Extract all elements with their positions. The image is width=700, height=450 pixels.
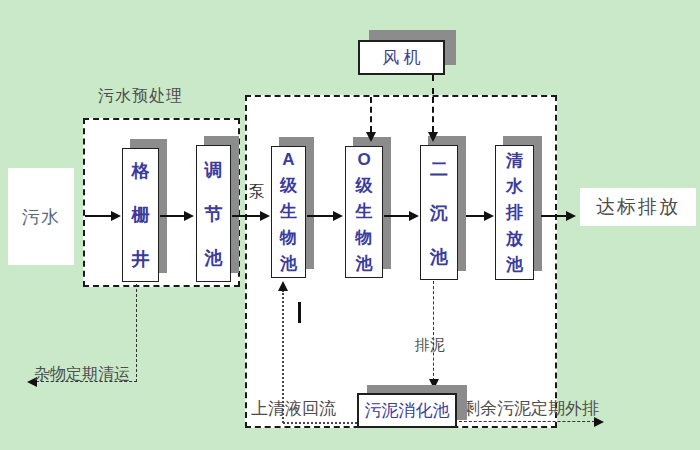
flow-arrowhead-o-to-sec (409, 211, 419, 221)
flow-arrowhead-grid-to-reg (184, 211, 194, 221)
flow-arrowhead-effluent (566, 211, 576, 221)
clean-water-discharge-tank: 清水排放池 (495, 145, 534, 280)
pump-label: 泵 (249, 182, 265, 203)
flow-line-grid-to-reg (160, 215, 185, 217)
secondary-sedimentation-label: 二沉池 (430, 147, 449, 279)
sludge-drain-label: 排泥 (415, 336, 445, 355)
sludge-digestion-tank: 污泥消化池 (357, 393, 457, 428)
air-line-to-sec-tank (432, 97, 434, 132)
clean-water-discharge-label: 清水排放池 (506, 148, 524, 278)
grid-well-tank: 格栅井 (122, 148, 159, 282)
fan-label: 风 机 (382, 46, 421, 69)
excess-sludge-line (459, 421, 595, 422)
flow-line-pump (232, 215, 261, 217)
fan-box: 风 机 (358, 40, 445, 75)
flow-arrowhead-a-to-o (333, 211, 343, 221)
air-arrowhead-o-tank (366, 132, 376, 142)
flow-arrowhead-sec-to-clean (484, 211, 494, 221)
grid-well-label: 格栅井 (131, 149, 150, 281)
a-bio-tank-label: A级生物池 (280, 147, 298, 277)
effluent-box: 达标排放 (580, 188, 696, 226)
regulating-tank-label: 调节池 (204, 148, 223, 280)
flow-line-effluent (541, 215, 567, 217)
sludge-digestion-label: 污泥消化池 (365, 399, 450, 422)
supernatant-return-label: 上清液回流 (251, 397, 336, 420)
debris-line-vertical (136, 284, 137, 382)
o-bio-tank: O级生物池 (345, 146, 383, 278)
flow-arrowhead-influent (111, 211, 121, 221)
influent-box: 污水 (8, 168, 74, 265)
excess-sludge-label: 剩余污泥定期外排 (463, 397, 599, 420)
effluent-label: 达标排放 (596, 194, 680, 220)
flow-line-o-to-sec (384, 215, 410, 217)
supernatant-arrowhead (278, 281, 288, 291)
wastewater-treatment-flow-diagram: 污水 达标排放 风 机 格栅井 调节池 A级生物池 O级生物池 二沉池 清水排放… (0, 0, 700, 450)
flow-line-influent (85, 215, 112, 217)
air-arrowhead-sec-tank (428, 132, 438, 142)
fan-connector-line (432, 75, 434, 94)
flow-line-sec-to-clean (466, 215, 485, 217)
secondary-sedimentation-tank: 二沉池 (420, 145, 458, 280)
sludge-drain-line (433, 281, 434, 381)
a-bio-tank: A级生物池 (271, 146, 306, 278)
flow-line-a-to-o (307, 215, 334, 217)
tick-mark (298, 302, 301, 323)
air-line-to-o-tank (370, 97, 372, 132)
supernatant-line-horizontal (283, 422, 357, 424)
sludge-drain-arrowhead (429, 379, 439, 389)
o-bio-tank-label: O级生物池 (355, 147, 373, 277)
excess-sludge-arrowhead (594, 417, 604, 427)
flow-arrowhead-pump (260, 211, 270, 221)
influent-label: 污水 (22, 205, 60, 229)
pretreatment-label: 污水预处理 (98, 86, 183, 107)
regulating-tank: 调节池 (196, 145, 231, 282)
debris-removal-label: 杂物定期清运 (34, 364, 130, 385)
